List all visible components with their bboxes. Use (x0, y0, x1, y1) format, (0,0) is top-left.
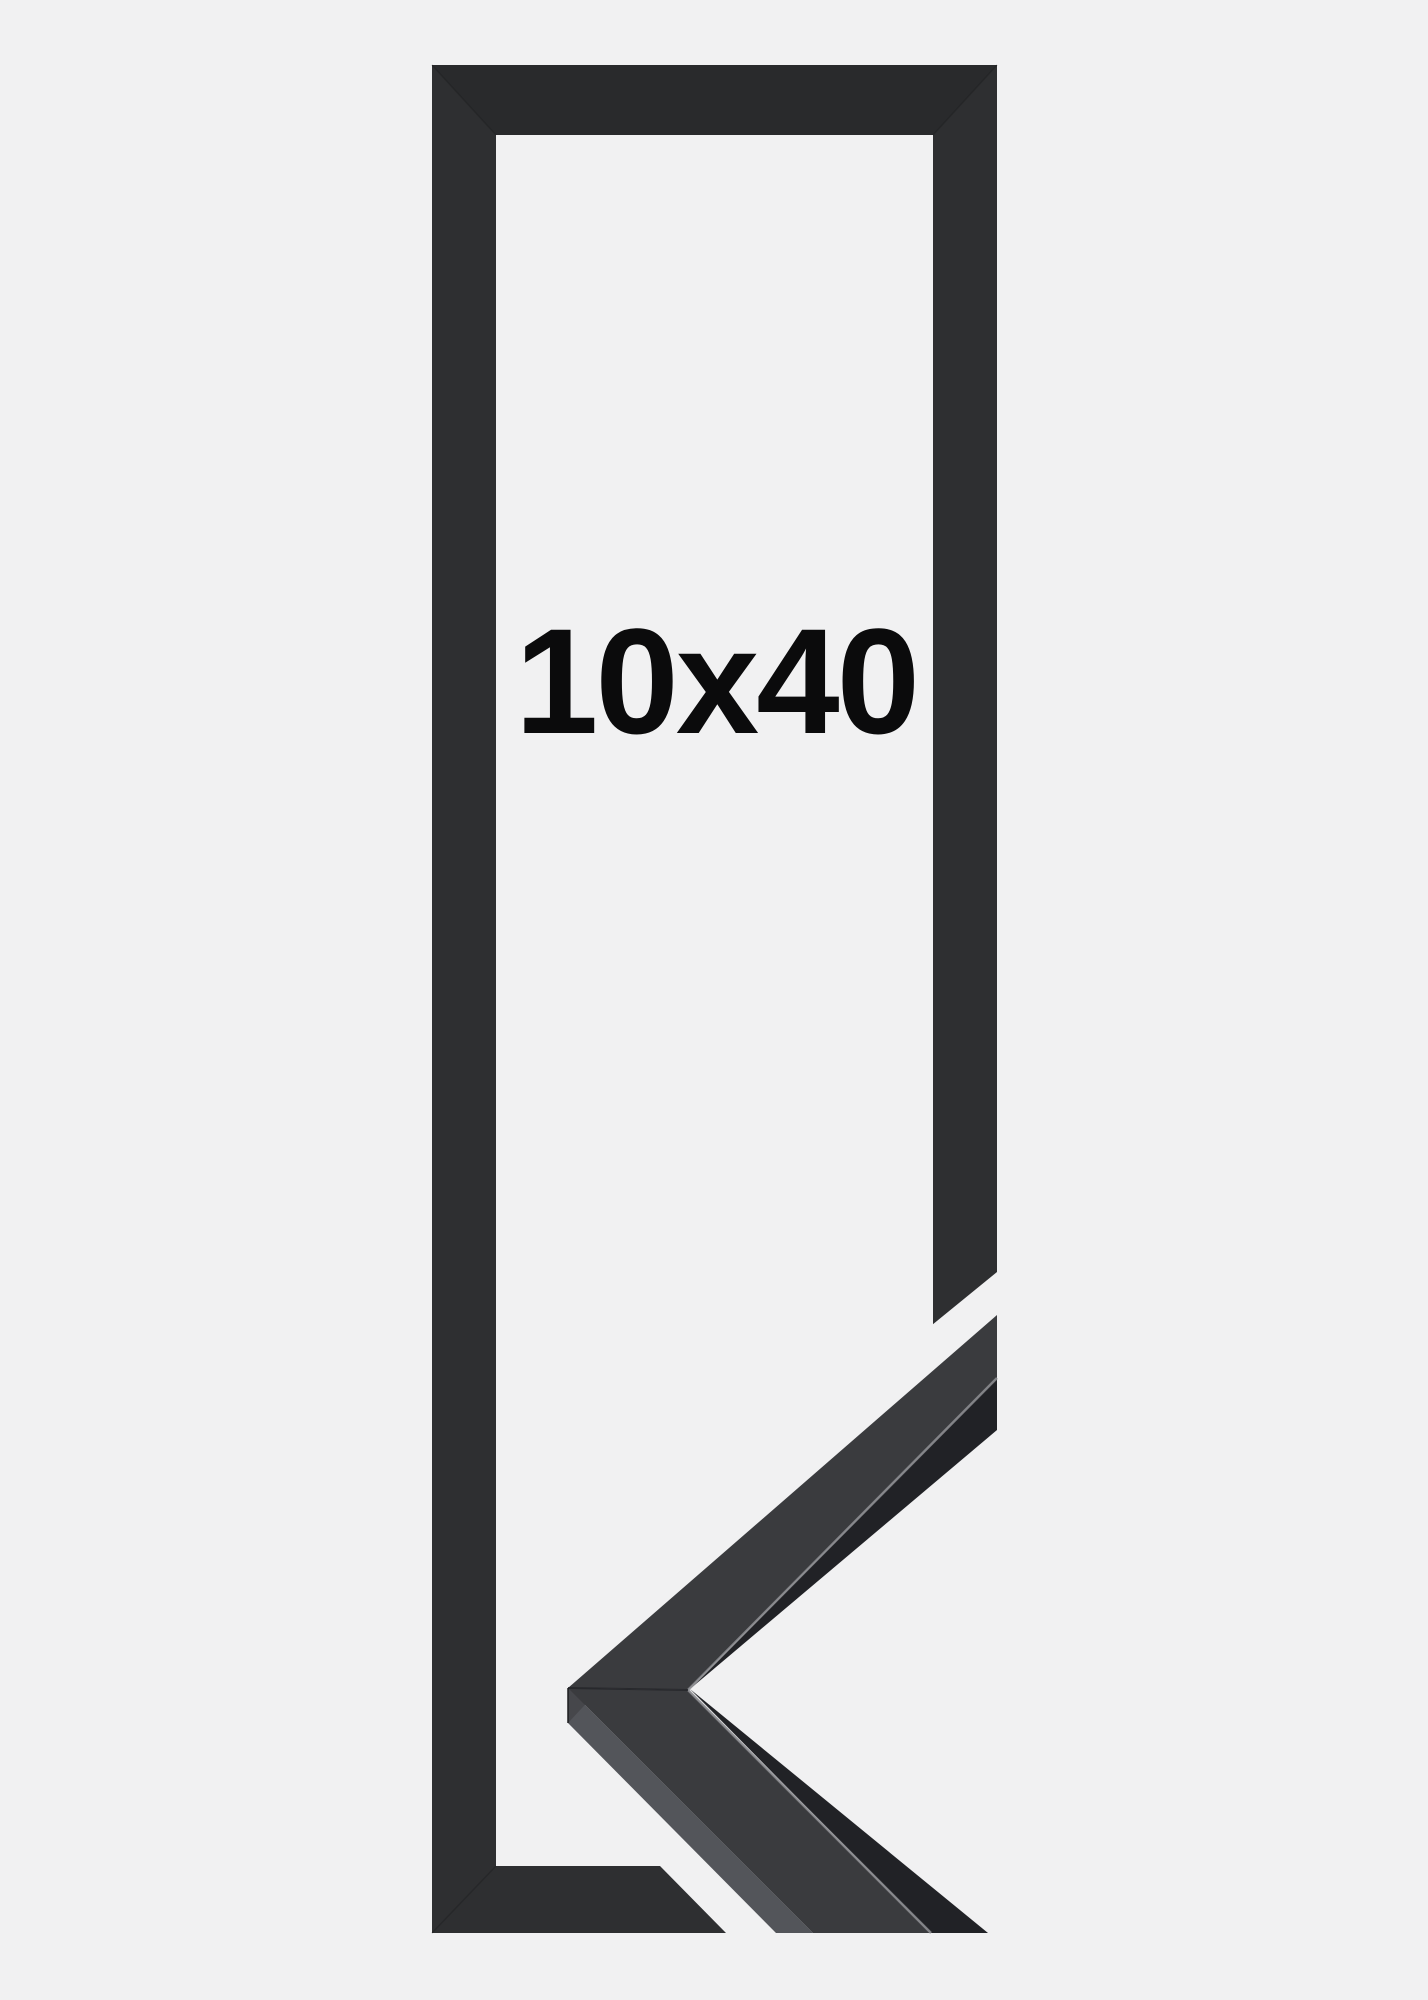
product-photo: 10x40 (0, 0, 1428, 2000)
frame-product-illustration: 10x40 (0, 0, 1428, 2000)
frame-size-label: 10x40 (515, 597, 917, 765)
photo-background (0, 0, 1428, 2000)
frame-top-rail-shade (432, 65, 997, 135)
